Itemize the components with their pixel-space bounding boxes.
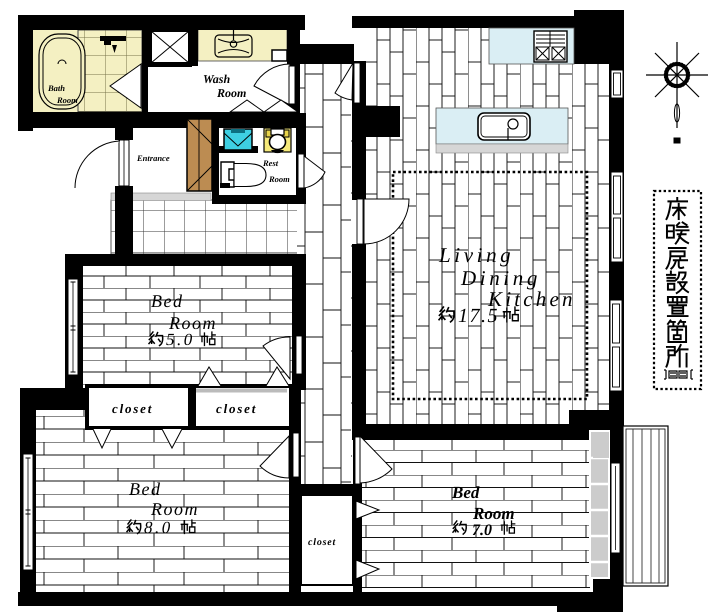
- svg-text:Rest: Rest: [262, 158, 279, 168]
- svg-text:Room: Room: [268, 174, 290, 184]
- svg-text:Bed: Bed: [151, 291, 183, 311]
- svg-text:Bed: Bed: [451, 483, 480, 502]
- svg-text:Kitchen: Kitchen: [487, 287, 576, 311]
- svg-text:5.0: 5.0: [166, 330, 195, 349]
- svg-text:Bath: Bath: [47, 83, 65, 93]
- svg-text:Living: Living: [438, 243, 514, 267]
- svg-text:closet: closet: [112, 401, 153, 416]
- svg-text:Room: Room: [216, 86, 246, 100]
- svg-text:Room: Room: [56, 95, 78, 105]
- svg-text:17.5: 17.5: [458, 305, 499, 327]
- svg-text:Entrance: Entrance: [136, 153, 170, 163]
- svg-text:closet: closet: [216, 401, 257, 416]
- svg-text:Wash: Wash: [203, 72, 230, 86]
- svg-text:Bed: Bed: [129, 479, 161, 499]
- svg-text:closet: closet: [308, 537, 337, 548]
- svg-text:8.0: 8.0: [144, 518, 173, 537]
- svg-text:Room: Room: [150, 499, 199, 519]
- svg-text:Room: Room: [472, 504, 515, 523]
- svg-text:7.0: 7.0: [472, 522, 492, 539]
